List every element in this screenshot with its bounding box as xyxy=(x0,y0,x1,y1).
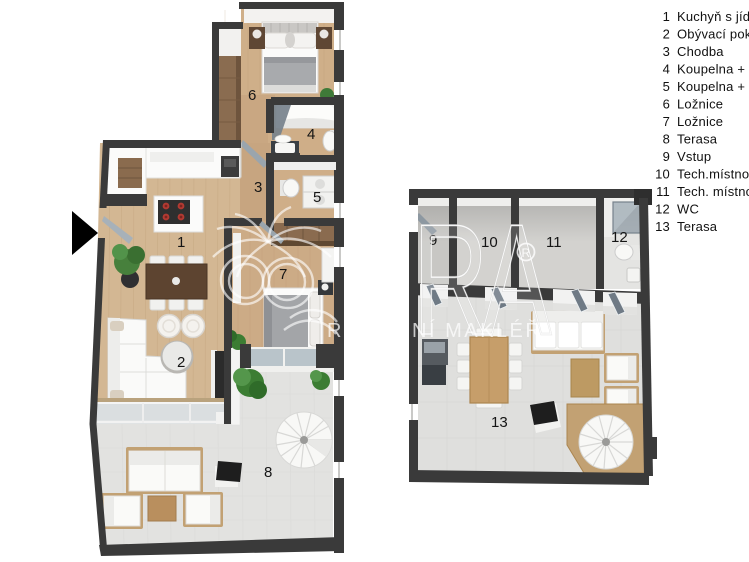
svg-text:4: 4 xyxy=(663,62,670,77)
svg-text:3: 3 xyxy=(254,179,262,196)
svg-text:Kuchyň s jídelnou: Kuchyň s jídelnou xyxy=(677,9,749,24)
svg-text:5: 5 xyxy=(663,79,670,94)
svg-text:Ložnice: Ložnice xyxy=(677,97,723,112)
svg-text:6: 6 xyxy=(663,97,670,112)
svg-text:Terasa: Terasa xyxy=(677,132,718,147)
svg-text:13: 13 xyxy=(655,219,670,234)
svg-text:4: 4 xyxy=(307,126,315,143)
svg-text:Koupelna + WC: Koupelna + WC xyxy=(677,62,749,77)
svg-text:8: 8 xyxy=(663,132,670,147)
svg-text:Obývací pokoj: Obývací pokoj xyxy=(677,27,749,42)
svg-text:Terasa: Terasa xyxy=(677,219,718,234)
svg-text:9: 9 xyxy=(663,149,670,164)
svg-text:2: 2 xyxy=(663,27,670,42)
svg-text:1: 1 xyxy=(177,234,185,251)
svg-text:REALITNÍ MAKLÉŘ: REALITNÍ MAKLÉŘ xyxy=(327,319,542,342)
svg-text:11: 11 xyxy=(546,234,562,251)
svg-text:5: 5 xyxy=(313,189,321,206)
svg-text:10: 10 xyxy=(655,167,670,182)
svg-text:Tech. místnost: Tech. místnost xyxy=(677,184,749,199)
svg-text:12: 12 xyxy=(611,229,628,246)
svg-text:Tech.místnost: Tech.místnost xyxy=(677,167,749,182)
svg-text:Koupelna + WC: Koupelna + WC xyxy=(677,79,749,94)
svg-text:1: 1 xyxy=(663,9,670,24)
svg-text:11: 11 xyxy=(656,184,670,199)
svg-text:7: 7 xyxy=(663,114,670,129)
svg-text:12: 12 xyxy=(655,202,670,217)
svg-text:7: 7 xyxy=(279,266,287,283)
svg-text:6: 6 xyxy=(248,87,256,104)
svg-text:2: 2 xyxy=(177,354,185,371)
svg-text:WC: WC xyxy=(677,202,699,217)
svg-text:3: 3 xyxy=(663,44,670,59)
svg-text:13: 13 xyxy=(491,414,508,431)
svg-text:8: 8 xyxy=(264,464,272,481)
svg-text:Chodba: Chodba xyxy=(677,44,724,59)
svg-text:Ložnice: Ložnice xyxy=(677,114,723,129)
svg-text:Vstup: Vstup xyxy=(677,149,711,164)
svg-text:R: R xyxy=(522,246,531,260)
